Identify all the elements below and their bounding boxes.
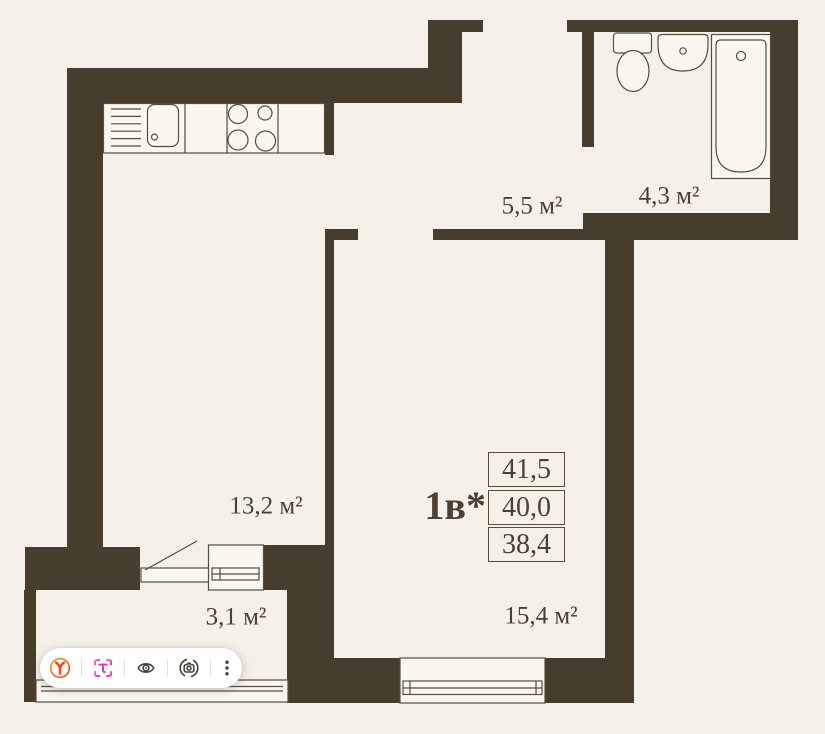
hide-overlay-button[interactable] bbox=[133, 653, 159, 683]
area-label-living: 13,2 м² bbox=[229, 494, 302, 519]
yandex-logo-icon bbox=[49, 657, 71, 679]
area-label-bedroom: 15,4 м² bbox=[504, 604, 577, 629]
screen-translate-icon bbox=[91, 656, 115, 680]
bathroom-sink bbox=[658, 35, 708, 72]
image-search-camera-icon bbox=[177, 656, 201, 680]
area-total: 41,5 bbox=[488, 452, 565, 487]
area-table: 41,5 40,0 38,4 bbox=[488, 452, 565, 562]
hide-overlay-eye-icon bbox=[135, 657, 157, 679]
toolbar-separator bbox=[167, 660, 168, 676]
balcony-door bbox=[141, 541, 210, 582]
toolbar-separator bbox=[81, 660, 82, 676]
image-search-button[interactable] bbox=[176, 653, 202, 683]
area-label-balcony: 3,1 м² bbox=[206, 605, 267, 630]
bathtub bbox=[712, 35, 771, 179]
more-options-icon bbox=[223, 657, 231, 679]
area-reduced: 40,0 bbox=[488, 490, 565, 525]
yandex-button[interactable] bbox=[47, 653, 73, 683]
unit-label: 1в* bbox=[414, 486, 486, 526]
more-options-button[interactable] bbox=[219, 653, 235, 683]
toolbar-separator bbox=[210, 660, 211, 676]
image-overlay-toolbar bbox=[40, 648, 242, 688]
toolbar-separator bbox=[124, 660, 125, 676]
area-label-hall: 5,5 м² bbox=[502, 194, 563, 219]
area-living: 38,4 bbox=[488, 527, 565, 562]
floor-plan-drawing bbox=[0, 0, 825, 734]
bedroom-window bbox=[400, 658, 545, 703]
toilet bbox=[614, 33, 652, 92]
balcony-door-window bbox=[209, 545, 264, 590]
screen-translate-button[interactable] bbox=[90, 653, 116, 683]
floor-plan-page: 13,2 м² 5,5 м² 4,3 м² 3,1 м² 15,4 м² 1в*… bbox=[0, 0, 825, 734]
area-label-bathroom: 4,3 м² bbox=[639, 184, 700, 209]
